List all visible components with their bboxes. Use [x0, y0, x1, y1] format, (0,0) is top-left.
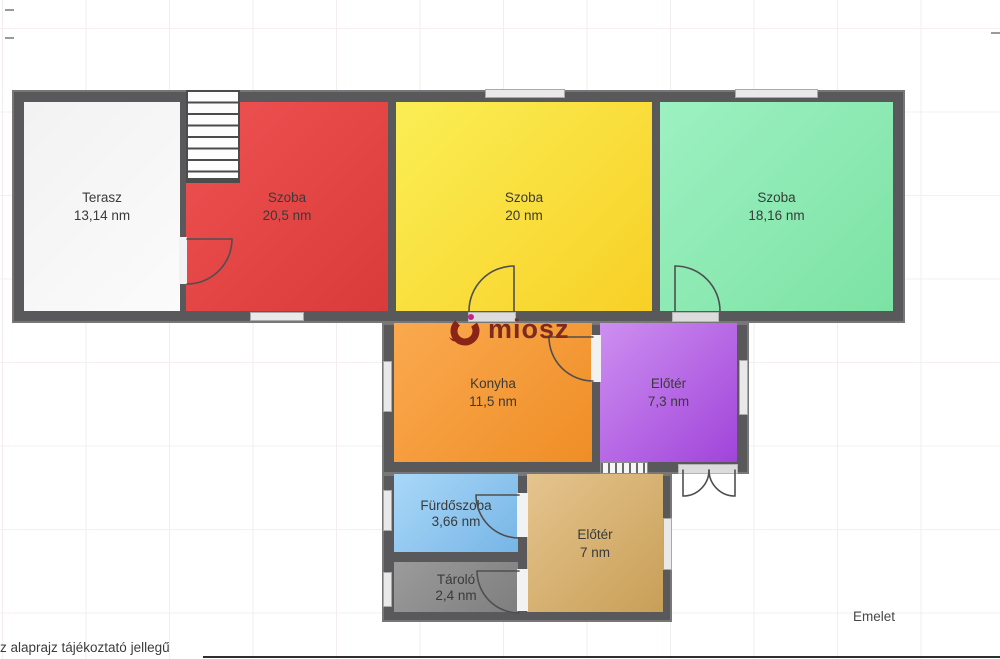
door-opening-furdoszoba	[517, 493, 528, 537]
room-tarolo: Tároló 2,4 nm	[394, 562, 518, 612]
grid-tick	[5, 9, 14, 11]
window-eloter-felso-right	[739, 360, 748, 415]
room-label: Fürdőszoba	[420, 498, 491, 513]
room-area: 13,14 nm	[74, 208, 130, 223]
room-eloter-also: Előtér 7 nm	[527, 474, 663, 612]
room-area: 3,66 nm	[432, 514, 481, 529]
bottom-divider-line	[203, 656, 1000, 658]
room-label: Szoba	[505, 190, 543, 205]
floor-label: Emelet	[853, 609, 895, 624]
room-furdoszoba: Fürdőszoba 3,66 nm	[394, 474, 518, 552]
room-eloter-felso: Előtér 7,3 nm	[600, 323, 737, 462]
grid-tick	[5, 37, 14, 39]
room-area: 11,5 nm	[469, 394, 517, 409]
door-passage-hatch	[600, 462, 648, 474]
miosz-logo-icon	[446, 310, 484, 348]
room-label: Előtér	[577, 527, 612, 542]
door-sill-entrance	[678, 464, 738, 474]
door-opening-tarolo	[517, 569, 528, 611]
room-area: 20,5 nm	[263, 208, 312, 223]
grid-tick	[991, 32, 1000, 34]
room-label: Szoba	[268, 190, 306, 205]
room-terasz: Terasz 13,14 nm	[24, 102, 180, 311]
window-szoba-1-bottom	[250, 312, 304, 321]
room-area: 7,3 nm	[648, 394, 689, 409]
room-area: 7 nm	[580, 545, 610, 560]
room-area: 2,4 nm	[435, 588, 476, 603]
window-konyha-left	[383, 361, 392, 412]
stairs	[186, 90, 240, 183]
window-eloter-also-right	[663, 518, 672, 570]
window-szoba-3-top	[735, 89, 818, 98]
miosz-logo-text: miosz	[488, 316, 570, 343]
room-szoba-3: Szoba 18,16 nm	[660, 102, 893, 311]
door-opening-konyha	[591, 335, 601, 382]
door-sill-szoba-3	[672, 312, 719, 322]
room-label: Szoba	[757, 190, 795, 205]
room-label: Konyha	[470, 376, 516, 391]
disclaimer-text: z alaprajz tájékoztató jellegű	[0, 640, 170, 655]
door-opening-terasz	[179, 237, 187, 284]
room-area: 18,16 nm	[748, 208, 804, 223]
room-label: Előtér	[651, 376, 686, 391]
miosz-logo: miosz	[446, 310, 570, 348]
room-area: 20 nm	[505, 208, 543, 223]
room-szoba-2: Szoba 20 nm	[396, 102, 652, 311]
room-label: Tároló	[437, 572, 475, 587]
window-tarolo-left	[383, 572, 392, 607]
window-szoba-2-top	[485, 89, 565, 98]
window-furdoszoba-left	[383, 490, 392, 531]
room-label: Terasz	[82, 190, 122, 205]
floor-plan-canvas: Terasz 13,14 nm Szoba 20,5 nm Szoba 20 n…	[0, 0, 1000, 659]
